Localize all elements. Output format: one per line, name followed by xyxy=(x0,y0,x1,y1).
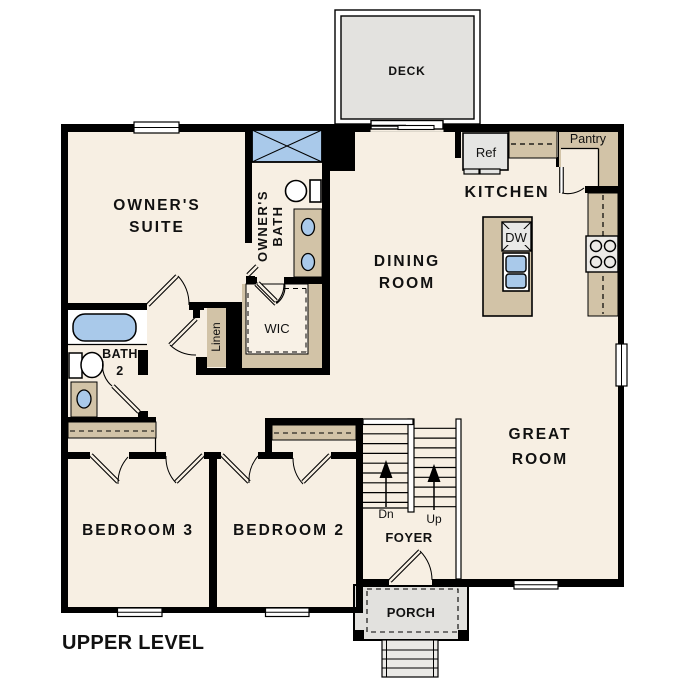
svg-text:Ref: Ref xyxy=(476,145,497,160)
svg-text:ROOM: ROOM xyxy=(379,275,435,292)
svg-text:2: 2 xyxy=(116,364,123,378)
svg-text:Dn: Dn xyxy=(378,507,393,521)
svg-text:BEDROOM 3: BEDROOM 3 xyxy=(82,522,194,539)
svg-text:BATH: BATH xyxy=(270,205,285,246)
svg-text:ROOM: ROOM xyxy=(512,451,568,468)
svg-text:SUITE: SUITE xyxy=(129,219,185,236)
svg-text:BATH: BATH xyxy=(102,347,138,361)
svg-text:DINING: DINING xyxy=(374,253,440,270)
svg-text:BEDROOM 2: BEDROOM 2 xyxy=(233,522,345,539)
svg-text:DECK: DECK xyxy=(388,64,425,78)
svg-text:UPPER LEVEL: UPPER LEVEL xyxy=(62,632,204,654)
svg-text:KITCHEN: KITCHEN xyxy=(464,184,549,201)
svg-text:PORCH: PORCH xyxy=(387,605,435,620)
svg-text:Linen: Linen xyxy=(209,322,223,351)
svg-text:Up: Up xyxy=(426,512,442,526)
svg-text:OWNER'S: OWNER'S xyxy=(113,197,200,214)
svg-text:Pantry: Pantry xyxy=(570,132,607,146)
svg-text:OWNER'S: OWNER'S xyxy=(255,190,270,262)
svg-text:GREAT: GREAT xyxy=(508,426,571,443)
svg-text:DW: DW xyxy=(505,230,527,245)
svg-text:FOYER: FOYER xyxy=(385,530,432,545)
svg-text:WIC: WIC xyxy=(264,321,289,336)
